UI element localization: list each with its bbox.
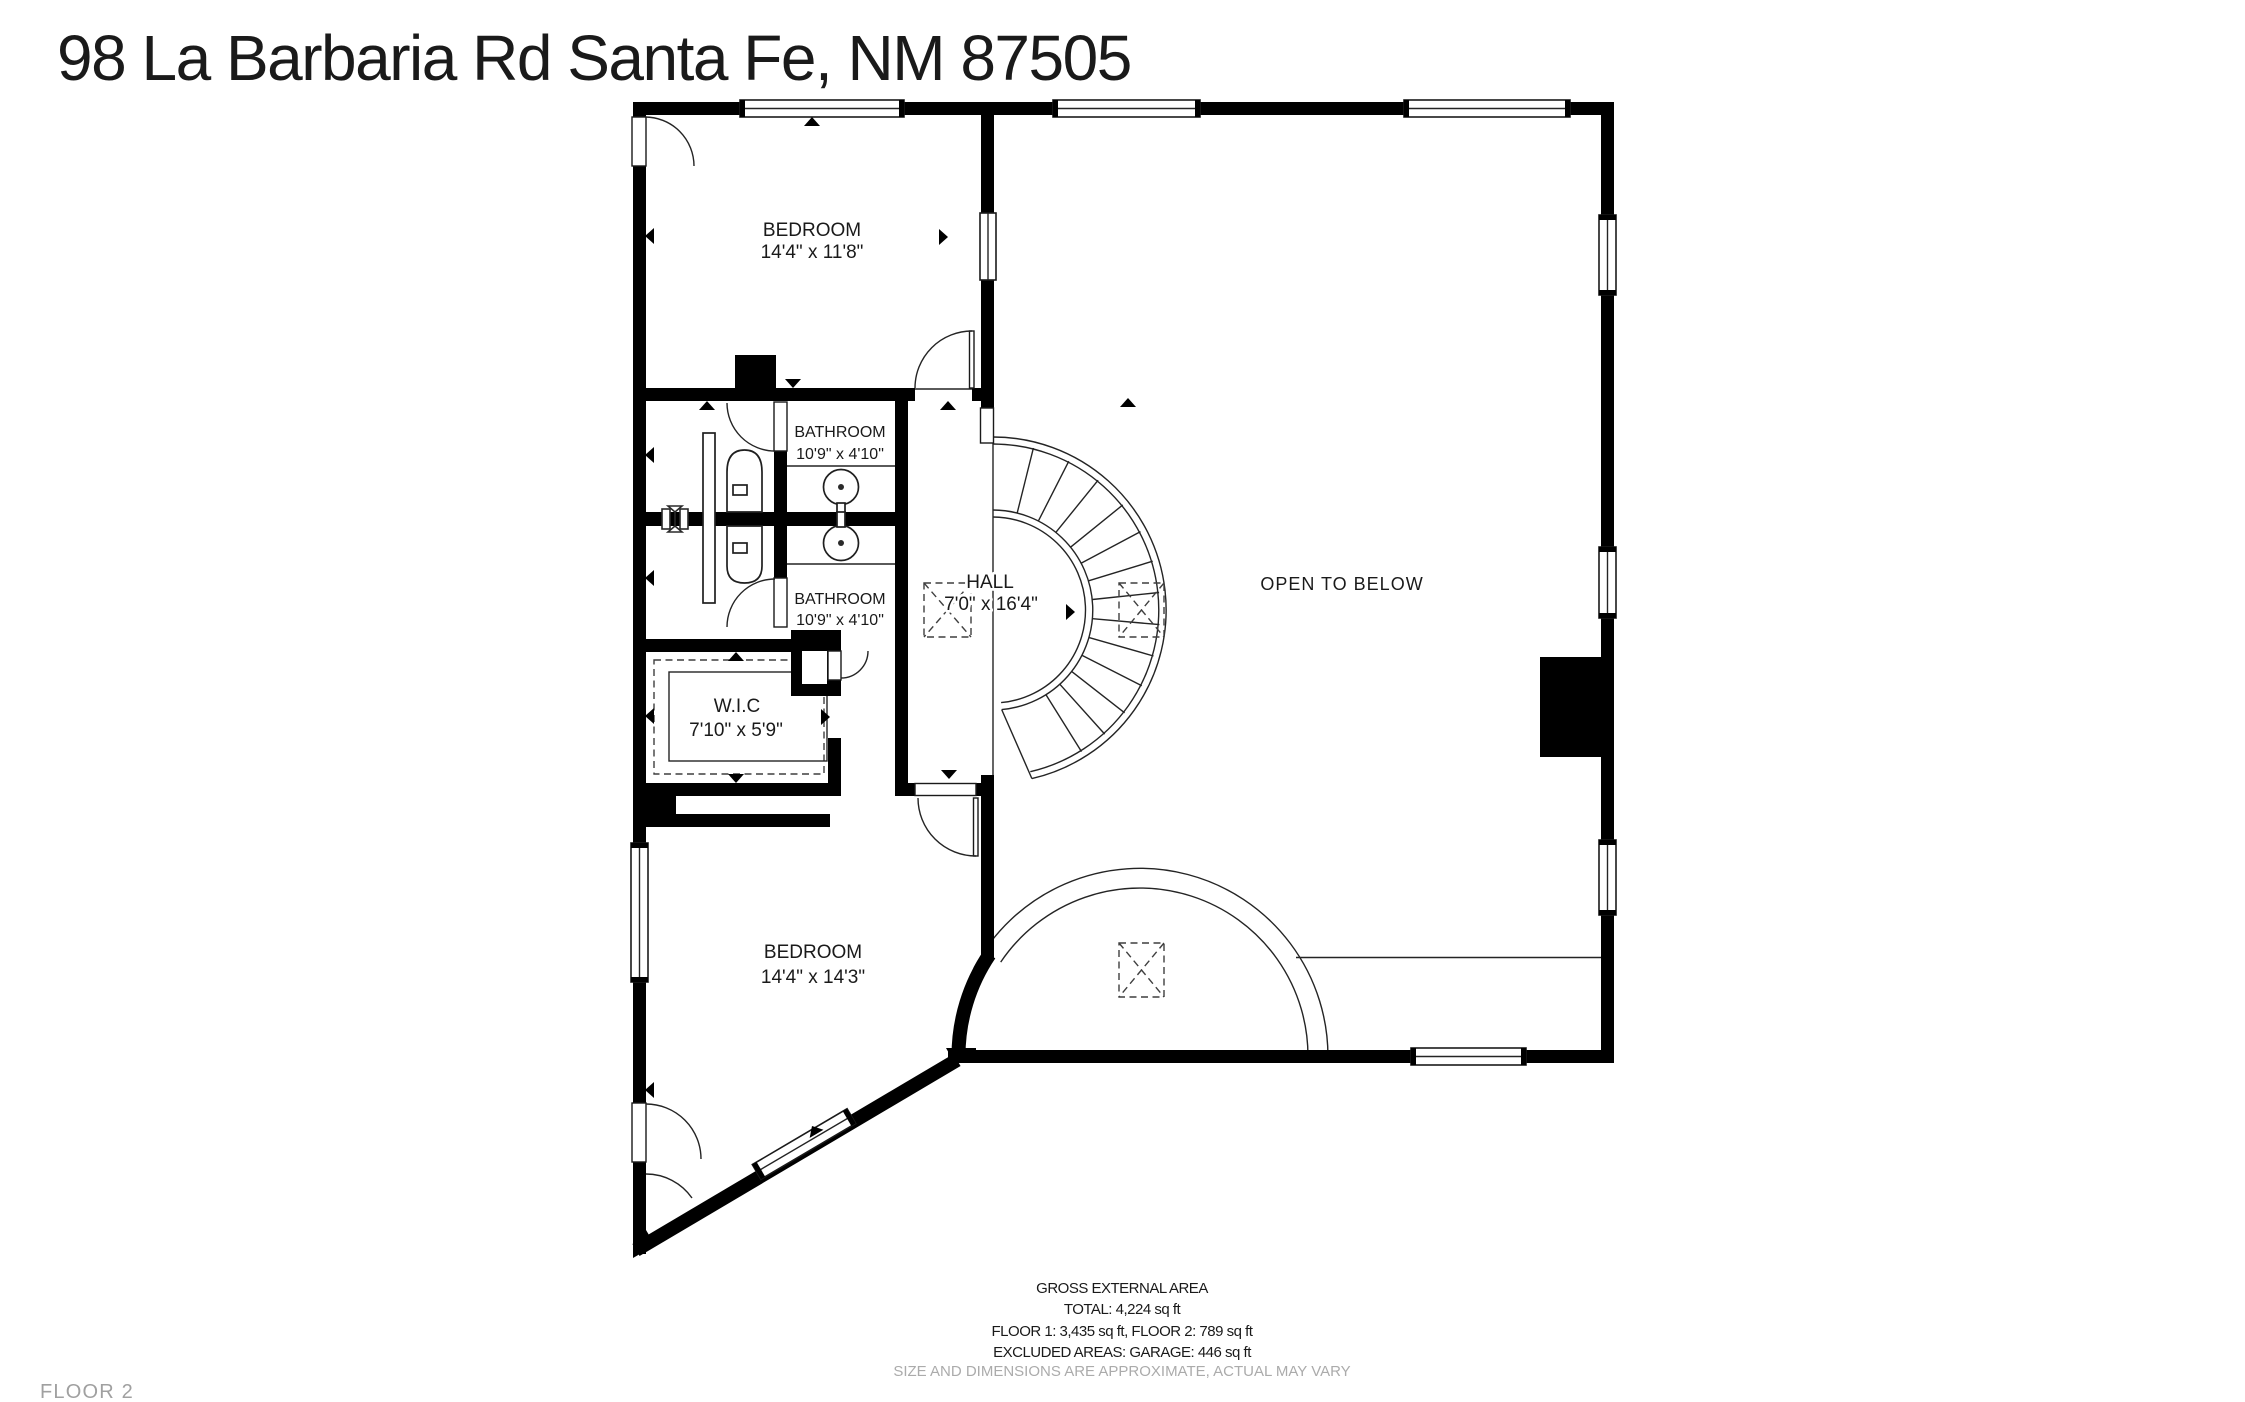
svg-text:10'9" x 4'10": 10'9" x 4'10" [796,612,884,629]
svg-text:98 La Barbaria Rd Santa Fe, NM: 98 La Barbaria Rd Santa Fe, NM 87505 [57,22,1131,94]
svg-text:10'9" x 4'10": 10'9" x 4'10" [796,446,884,463]
svg-text:14'4" x 14'3": 14'4" x 14'3" [761,967,865,988]
svg-text:FLOOR 1: 3,435 sq ft, FLOOR 2:: FLOOR 1: 3,435 sq ft, FLOOR 2: 789 sq ft [992,1323,1254,1340]
svg-text:BATHROOM: BATHROOM [794,424,885,441]
svg-text:TOTAL: 4,224 sq ft: TOTAL: 4,224 sq ft [1064,1301,1182,1318]
svg-text:HALL: HALL [966,572,1014,593]
svg-text:BATHROOM: BATHROOM [794,591,885,608]
svg-text:7'0" x 16'4": 7'0" x 16'4" [944,594,1038,615]
svg-text:EXCLUDED AREAS: GARAGE: 446 sq: EXCLUDED AREAS: GARAGE: 446 sq ft [993,1344,1252,1361]
svg-text:SIZE AND DIMENSIONS ARE APPROX: SIZE AND DIMENSIONS ARE APPROXIMATE, ACT… [893,1363,1350,1380]
svg-text:BEDROOM: BEDROOM [764,942,862,963]
svg-text:7'10" x 5'9": 7'10" x 5'9" [689,720,783,741]
svg-text:14'4" x 11'8": 14'4" x 11'8" [761,242,864,263]
svg-text:W.I.C: W.I.C [714,696,760,717]
svg-text:OPEN TO BELOW: OPEN TO BELOW [1260,574,1423,594]
svg-text:BEDROOM: BEDROOM [763,220,861,241]
svg-text:FLOOR 2: FLOOR 2 [40,1381,134,1402]
svg-text:GROSS EXTERNAL AREA: GROSS EXTERNAL AREA [1036,1280,1208,1297]
